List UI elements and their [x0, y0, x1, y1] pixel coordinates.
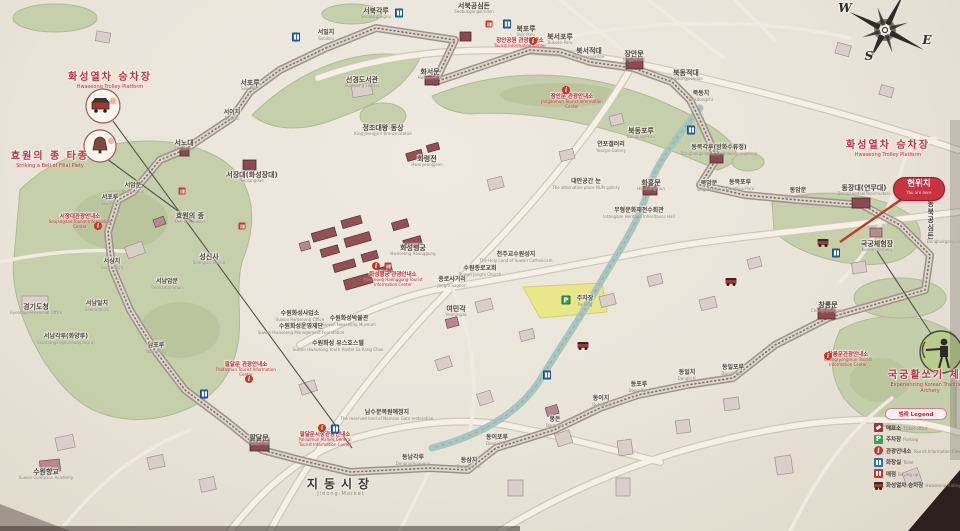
map-label: 남포루Nam-Poru: [146, 343, 166, 354]
map-label: 동남각루Dongnamgangnu: [396, 455, 431, 466]
legend: 범례 Legend 매표소Ticket office P 주차장Parking …: [874, 408, 958, 493]
map-label: 동장대(연무대)Dongjangdae(Yeonmudae): [837, 184, 890, 197]
map-label: 북암문Bugammun: [697, 181, 720, 192]
feature-label: 효원의 종 타종Striking a Bell of Filial Piety: [11, 151, 89, 169]
trolley-map-icon: [578, 342, 589, 348]
map-labels-layer: 화성열차 승차장Hwaseong Trolley Platform효원의 종 타…: [0, 0, 960, 531]
shop-map-icon: [385, 263, 392, 270]
map-label: 동북공심돈Dongbukgongsimdon: [927, 200, 960, 245]
parking-icon: P: [874, 435, 883, 444]
tourist-information-icon: i: [874, 446, 883, 455]
map-label: 동일포루Dongil-Poru: [721, 365, 744, 376]
map-label: 북서포루Bukseo-Poru: [547, 33, 573, 46]
map-label: 연포갤러리Yeonpo Gallery: [596, 142, 626, 153]
map-label: 성신사Seongsin Shrine: [193, 253, 225, 266]
map-label: 서남암문Seonamammun: [151, 279, 183, 290]
map-label: 팔달문Paldalmun: [249, 434, 270, 447]
toilet-map-icon: [687, 126, 695, 135]
info-map-icon: i: [529, 37, 537, 45]
ticket-office-icon: [874, 423, 883, 432]
info-map-icon: i: [245, 375, 253, 383]
map-label: 종로사거리Jongro Sageori: [437, 277, 466, 288]
map-label: 서포루Seo-Poru: [240, 79, 259, 92]
info-map-icon: i: [824, 352, 832, 360]
map-label: 수원화성 유스호스텔Suwon Hwaseong Youth Hostel Sa…: [293, 341, 384, 352]
map-label: 서암문Seoammun: [122, 183, 145, 194]
map-photo: 화성열차 승차장Hwaseong Trolley Platform효원의 종 타…: [0, 0, 960, 531]
map-label: 동북각루(방화수류정)Dongbukgangnu(Banghwasuryujeo…: [680, 145, 757, 156]
trolley-map-icon: [726, 278, 737, 284]
map-label: 동북포루Dongbuk-Poru: [726, 180, 754, 191]
map-label: 화서문Hwaseomun: [418, 68, 443, 81]
compass-letter-e: E: [922, 34, 931, 48]
map-label: 국궁체험장Korean Archery: [861, 240, 893, 253]
map-label: 북동적대Bukdongjeokdae: [669, 69, 702, 82]
map-label: 장안문Janganmun: [623, 50, 646, 63]
toilet-map-icon: [832, 249, 840, 258]
toilet-map-icon: [331, 425, 339, 434]
compass-letter-s: S: [865, 50, 874, 64]
map-label: 북포루Buk-Poru: [516, 25, 535, 38]
legend-item-trolley: 화성열차 승차장Hwaseong Trolley Platform: [874, 481, 958, 490]
legend-item-toilet: 화장실Toilet: [874, 458, 958, 467]
map-label: 무형문화재전수회관Intangible Heritage Inheritance…: [603, 208, 674, 219]
map-label: 서일치Seoilchi: [318, 30, 335, 41]
info-map-icon: i: [94, 222, 102, 230]
map-label: 동일치Dongilchi: [678, 370, 697, 381]
info-center-label: 서장대관광안내소Seojangdae Tourist Information C…: [47, 214, 113, 230]
info-map-icon: i: [562, 86, 570, 94]
map-label: 북서적대Bukseojeokdae: [574, 47, 604, 60]
parking-map-icon: P: [562, 296, 571, 305]
shop-map-icon: [239, 223, 246, 230]
map-label: 화령전Hwaryeongjeon: [411, 155, 442, 168]
map-label: 서포루Seo-Poru: [101, 195, 119, 206]
map-label: 수원화성사업소Suwon Hwaseong Office: [276, 311, 324, 322]
compass-letter-w: W: [838, 2, 851, 16]
toilet-icon: [874, 458, 883, 467]
trolley-map-icon: [818, 239, 829, 245]
map-label: 서남각루(화양루)Seonamgangnu(Hwayangru): [37, 334, 94, 345]
map-label: 경기도청Gyeonggi Provincial Office: [10, 303, 63, 316]
trolley-icon: [874, 482, 883, 488]
map-label: 북동포루Bukdong-Poru: [627, 127, 655, 140]
map-label: 대안공간 눈The alternative place NUN gallery: [552, 179, 620, 190]
map-label: 서북각루Seobukgangnu: [361, 7, 391, 20]
map-label: 동포루Dong-Poru: [629, 382, 650, 393]
feature-label: 화성열차 승차장Hwaseong Trolley Platform: [68, 72, 152, 90]
feature-label: 화성열차 승차장Hwaseong Trolley Platform: [846, 140, 930, 158]
map-label: 정조대왕 동상King Jeongjo's Bronze Statue: [354, 124, 412, 137]
legend-item-parking: P 주차장Parking: [874, 435, 958, 444]
info-center-label: 장안문 관광안내소Janganmun Tourist Information C…: [539, 94, 605, 110]
info-map-icon: i: [372, 262, 380, 270]
map-label: 효원의 종Bell of Hyowon: [175, 212, 205, 225]
you-are-here-badge: 현위치 You are here: [893, 177, 945, 201]
toilet-map-icon: [395, 9, 403, 18]
map-label: 동이치Dongichi: [592, 396, 610, 407]
legend-title: 범례 Legend: [885, 408, 947, 420]
toilet-map-icon: [503, 20, 511, 29]
map-label: 서장대(화성장대)Seojangdae: [226, 171, 277, 184]
you-are-here-en: You are here: [894, 191, 944, 195]
map-label: 수원화성운영재단Suwon Hwaseong Management Founda…: [258, 324, 345, 335]
map-label: 주차장Parking: [577, 296, 594, 307]
map-label: 천주교수원성지The Holy Land of Suwon Catholicis…: [480, 252, 553, 263]
info-center-label: 창룡문관광안내소Changryongmun Tourist Informatio…: [815, 352, 881, 368]
shop-map-icon: [179, 188, 186, 195]
map-label: 서노대Seonodae: [174, 139, 194, 152]
map-label: 여민각Yeomingak: [445, 305, 467, 318]
shop-map-icon: [486, 21, 493, 28]
feature-label: 국궁활쏘기 체험Experiencing Korean Traditional …: [888, 370, 960, 394]
info-center-label: 화성행궁 관광안내소Hwaseong Haenggung Tourist Inf…: [360, 272, 426, 288]
map-label: 서북공심돈Seobukgongsimdon: [454, 2, 494, 15]
map-label: 수원화성박물관Suwon Hwaseong Museum: [322, 316, 376, 327]
info-map-icon: i: [318, 424, 326, 432]
snack-shop-icon: [874, 469, 883, 478]
map-label: 남수문복원예정지The reserved land of Namsoo Gate…: [341, 410, 434, 421]
info-center-label: 팔달문시장관광안내소Paldalmun Market General Touri…: [292, 432, 358, 448]
info-center-label: 팔달문 관광안내소Paldalmun Tourist Information C…: [213, 362, 279, 378]
toilet-map-icon: [200, 390, 208, 399]
legend-item-ticket-office: 매표소Ticket office: [874, 423, 958, 432]
map-label: 동삼치Dongsamchi: [457, 458, 482, 469]
map-label: 동이포루Dongi-Poru: [486, 435, 508, 446]
map-label: 화성행궁Hwaseong Haenggung: [390, 244, 435, 257]
info-center-label: 장안공원 관광안내소Tourist Information Center: [494, 38, 546, 49]
toilet-map-icon: [292, 33, 300, 42]
map-label: 봉돈Bongdon: [546, 417, 564, 428]
map-label: 창룡문Changnyongmun: [811, 301, 845, 314]
map-label: 서삼치Seosamchi: [101, 259, 123, 270]
toilet-map-icon: [543, 371, 551, 380]
map-label: 북동치Bukdongchi: [689, 91, 713, 102]
map-label: 수원종로교회Suwon Jongro Church: [459, 266, 502, 277]
map-label: 수원향교Suwon Confucian Academy: [19, 468, 73, 481]
legend-item-snack-shop: 매점Buying up: [874, 469, 958, 478]
map-label: 서남일치Seonamilchi: [85, 301, 109, 312]
legend-item-tourist-information: i 관광안내소Tourist Information Center: [874, 446, 958, 455]
map-label: 동암문Dongammun: [785, 188, 811, 199]
map-label: 서이치Seoichi: [224, 110, 241, 121]
map-label: 선경도서관Sunkyung Library: [344, 76, 379, 89]
map-label: 지동시장Jidong-Market: [307, 478, 375, 498]
map-label: 화홍문Hwahongmun: [637, 179, 665, 192]
